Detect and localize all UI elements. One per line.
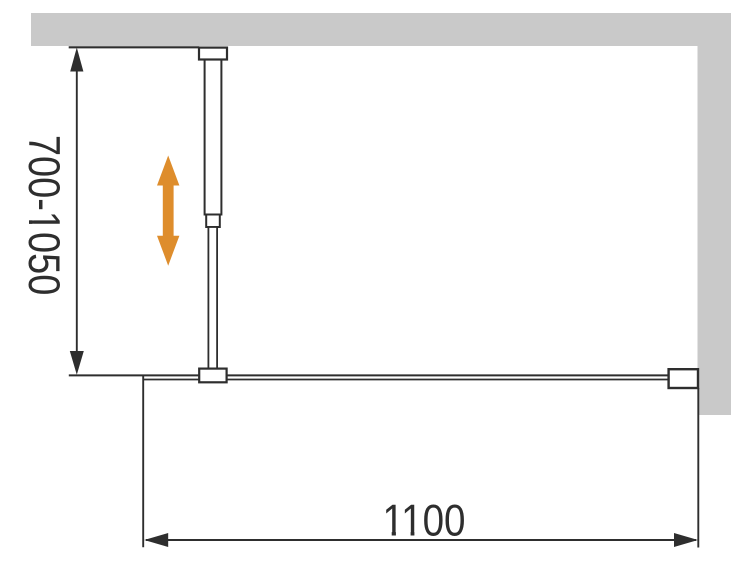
svg-text:700-1050: 700-1050 [19, 135, 68, 296]
svg-text:1100: 1100 [383, 497, 466, 546]
